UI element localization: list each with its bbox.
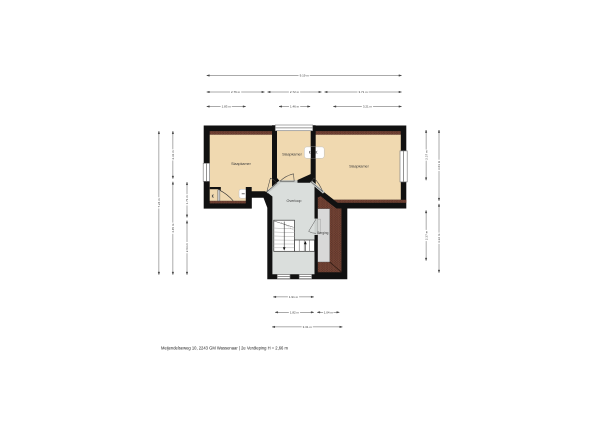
svg-text:2.76 m: 2.76 m (231, 90, 241, 94)
svg-text:9.19 m: 9.19 m (300, 74, 310, 78)
svg-text:3.31 m: 3.31 m (303, 325, 313, 329)
svg-text:3.63 m: 3.63 m (437, 160, 441, 170)
svg-text:2.72 m: 2.72 m (290, 90, 300, 94)
svg-text:1.71 m: 1.71 m (185, 195, 189, 205)
svg-text:2.37 m: 2.37 m (424, 230, 428, 240)
svg-text:3.32 m: 3.32 m (437, 233, 441, 243)
svg-text:Slaapkamer: Slaapkamer (349, 165, 369, 169)
svg-text:Overloop: Overloop (287, 199, 302, 203)
svg-text:4.45 m: 4.45 m (171, 223, 175, 233)
svg-text:2.31 m: 2.31 m (171, 150, 175, 160)
svg-text:1.04 m: 1.04 m (324, 310, 334, 314)
svg-text:Berging: Berging (317, 231, 328, 235)
svg-text:2.37 m: 2.37 m (424, 150, 428, 160)
svg-text:1.46 m: 1.46 m (290, 105, 300, 109)
svg-text:2.63 m: 2.63 m (185, 243, 189, 253)
svg-text:3.21 m: 3.21 m (363, 105, 373, 109)
svg-text:1.91 m: 1.91 m (289, 295, 299, 299)
svg-text:Slaapkamer: Slaapkamer (231, 162, 251, 166)
svg-text:3.71 m: 3.71 m (358, 90, 368, 94)
svg-text:Meijendelseweg 10, 2243 GM Was: Meijendelseweg 10, 2243 GM Wassenaar | 2… (161, 345, 288, 350)
svg-text:Slaapkamer: Slaapkamer (282, 152, 302, 156)
svg-text:7.24 m: 7.24 m (157, 198, 161, 208)
svg-text:1.82 m: 1.82 m (290, 310, 300, 314)
svg-text:1.83 m: 1.83 m (222, 105, 232, 109)
